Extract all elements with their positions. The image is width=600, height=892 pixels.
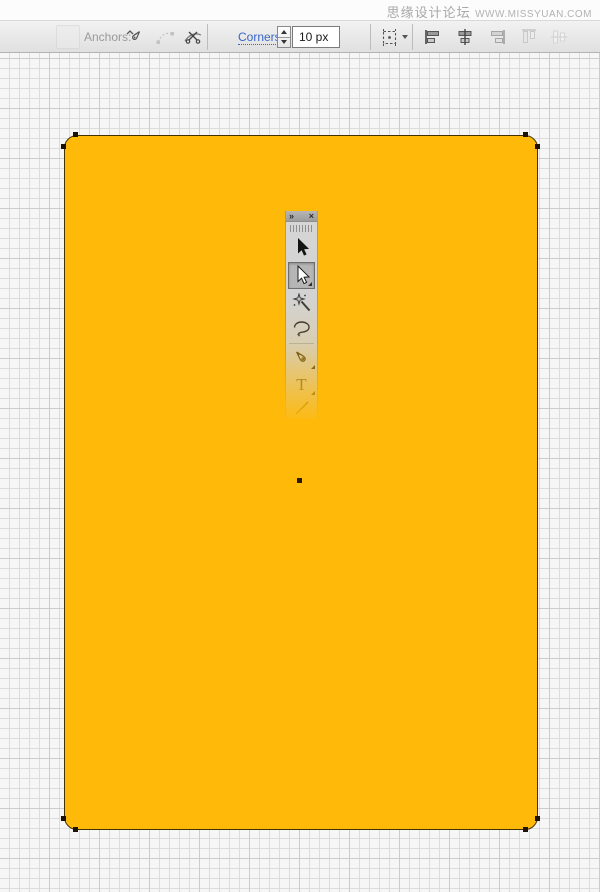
toolbar-divider xyxy=(207,24,208,50)
anchor-point[interactable] xyxy=(523,132,528,137)
selection-tool[interactable] xyxy=(286,234,317,260)
horizontal-align-right-button xyxy=(484,25,510,49)
toolbar-divider xyxy=(370,24,371,50)
lasso-tool[interactable] xyxy=(286,316,317,342)
window-top-strip: 思缘设计论坛 WWW.MISSYUAN.COM xyxy=(0,0,600,20)
flyout-triangle-icon xyxy=(311,391,315,395)
watermark-site-name: 思缘设计论坛 xyxy=(387,5,471,20)
pen-tool[interactable] xyxy=(286,345,317,371)
palette-drag-grip[interactable] xyxy=(290,225,313,232)
show-handles-button xyxy=(152,25,178,49)
dropdown-arrow-icon xyxy=(402,35,408,39)
anchor-point[interactable] xyxy=(73,827,78,832)
watermark-site-url: WWW.MISSYUAN.COM xyxy=(475,9,592,20)
palette-separator xyxy=(289,343,314,344)
convert-anchor-button[interactable] xyxy=(122,25,148,49)
control-bar: Anchors: Corners: xyxy=(0,20,600,53)
cut-path-button[interactable] xyxy=(180,25,206,49)
line-segment-icon xyxy=(293,399,311,417)
anchor-point[interactable] xyxy=(73,132,78,137)
horizontal-align-center-icon xyxy=(455,27,475,47)
cut-path-icon xyxy=(182,26,204,48)
magic-wand-tool[interactable] xyxy=(286,290,317,316)
anchor-point[interactable] xyxy=(523,827,528,832)
anchor-point[interactable] xyxy=(61,144,66,149)
horizontal-align-center-button[interactable] xyxy=(452,25,478,49)
vertical-align-top-icon xyxy=(519,27,539,47)
vertical-align-center-icon xyxy=(549,27,569,47)
corners-value-input[interactable] xyxy=(292,26,340,48)
select-similar-button[interactable] xyxy=(377,25,411,49)
select-similar-icon xyxy=(380,28,399,47)
close-panel-icon[interactable]: × xyxy=(309,212,314,221)
down-arrow-icon xyxy=(281,40,287,44)
stepper-down-button[interactable] xyxy=(278,37,290,48)
horizontal-align-right-icon xyxy=(487,27,507,47)
corners-stepper xyxy=(277,26,291,48)
selection-arrow-icon xyxy=(292,237,311,258)
magic-wand-icon xyxy=(292,293,312,313)
direct-selection-tool[interactable] xyxy=(286,260,317,290)
up-arrow-icon xyxy=(281,30,287,34)
anchor-point[interactable] xyxy=(61,816,66,821)
vertical-align-top-button xyxy=(516,25,542,49)
anchor-point[interactable] xyxy=(535,816,540,821)
selected-tool-highlight xyxy=(288,262,315,289)
shape-center-point xyxy=(297,478,302,483)
floating-tool-palette: » × xyxy=(285,211,318,419)
watermark: 思缘设计论坛 WWW.MISSYUAN.COM xyxy=(387,2,592,22)
lasso-icon xyxy=(291,319,312,339)
collapse-panel-icon[interactable]: » xyxy=(289,212,294,221)
stepper-up-button[interactable] xyxy=(278,27,290,37)
convert-anchor-icon xyxy=(124,26,146,48)
pen-icon xyxy=(292,348,312,368)
partial-toolbar-button xyxy=(56,25,80,49)
type-tool[interactable]: T xyxy=(286,371,317,397)
anchor-point[interactable] xyxy=(535,144,540,149)
vertical-align-center-button xyxy=(546,25,572,49)
palette-title-bar: » × xyxy=(286,211,317,222)
toolbar-divider xyxy=(412,24,413,50)
horizontal-align-left-icon xyxy=(423,27,443,47)
type-tool-icon: T xyxy=(296,376,306,393)
flyout-triangle-icon xyxy=(311,365,315,369)
show-handles-icon xyxy=(154,26,176,48)
flyout-triangle-icon xyxy=(308,282,312,286)
line-segment-tool[interactable] xyxy=(286,397,317,419)
horizontal-align-left-button[interactable] xyxy=(420,25,446,49)
